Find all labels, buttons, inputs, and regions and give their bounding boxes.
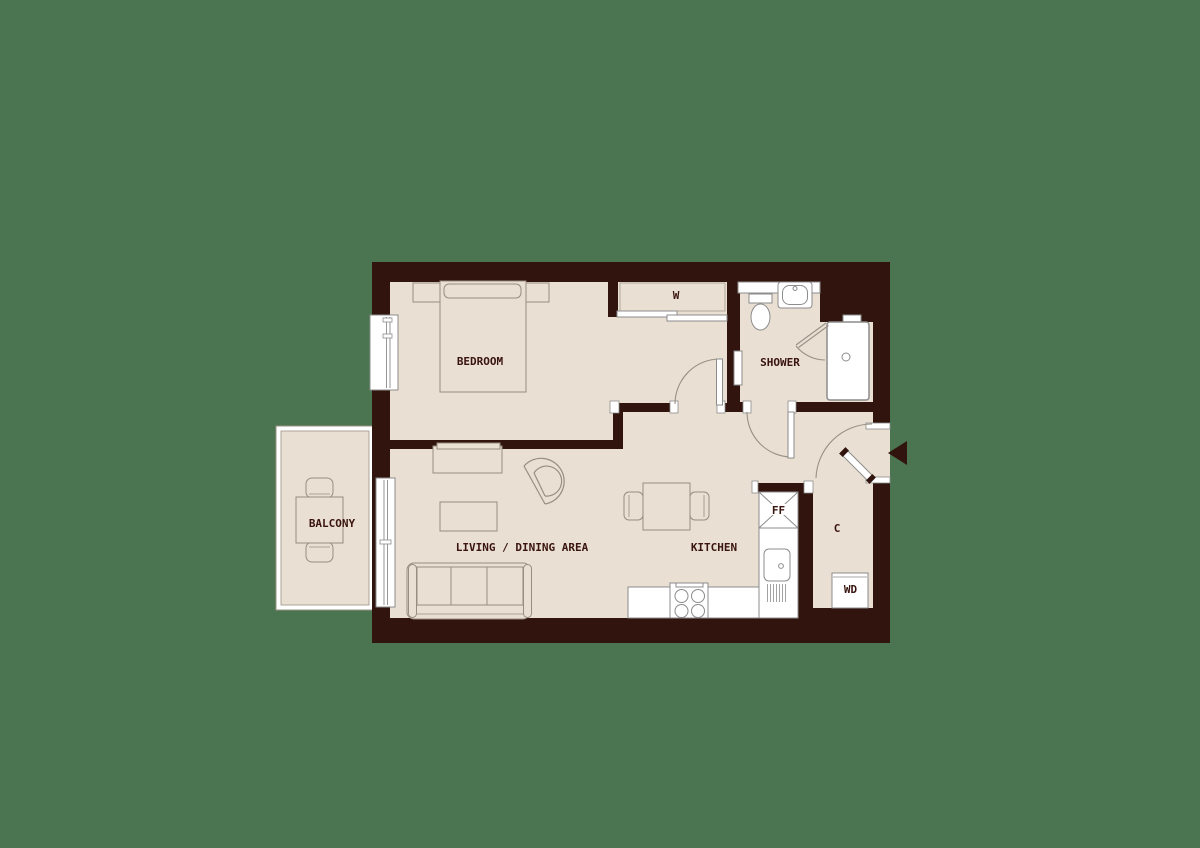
wardrobe-slider-right [667,315,727,321]
wall-right-upper [873,262,890,428]
sink-drainer [768,584,786,602]
wall-living-north [388,440,623,449]
bedroom-window [370,315,398,390]
label-living-dining: LIVING / DINING AREA [456,541,589,554]
wall-bathroom-west [727,282,740,412]
balcony-chair-top [306,478,333,498]
wall-right-lower [873,478,890,643]
basin-faucet [793,287,797,291]
balcony-sliding-door [376,478,395,607]
wall-top [372,262,890,282]
label-fridge-freezer: FF [772,504,785,517]
hob-burner-4 [692,605,705,618]
kitchen-sink [764,549,790,581]
label-washer-dryer: WD [844,583,858,596]
bedside-table-left [413,283,440,302]
label-balcony: BALCONY [309,517,356,530]
sofa-cushion-3 [487,567,523,605]
sofa-cushion-1 [417,567,451,605]
sofa-cushion-2 [451,567,487,605]
coffee-table [440,502,497,531]
dining-table [643,483,690,530]
dining-chair-left [624,492,643,520]
label-cupboard: C [834,522,841,535]
label-kitchen: KITCHEN [691,541,737,554]
sofa-arm-left [409,565,417,618]
sink-faucet [779,564,784,569]
bed-pillow [444,284,521,298]
label-wardrobe: W [673,289,680,302]
dining-chair-right [690,492,709,520]
hob-burner-3 [675,605,688,618]
wall-bottom [372,618,890,643]
hob-control-strip [676,583,703,587]
tv [437,443,500,449]
bedside-table-right [526,283,549,302]
wall-bathroom-south-b [792,402,873,412]
shower-head-box [843,315,861,322]
floor-plan-canvas: BEDROOM W SHOWER LIVING / DINING AREA KI… [0,0,1200,848]
toilet-bowl [751,304,770,330]
hob-burner-2 [692,590,705,603]
sofa-arm-right [524,565,532,618]
label-bedroom: BEDROOM [457,355,504,368]
shower-drain [842,353,850,361]
balcony-chair-bottom [306,542,333,562]
wall-cupboard-west [798,483,813,618]
toilet-cistern [749,294,772,303]
label-shower: SHOWER [760,356,800,369]
tv-unit [433,446,502,473]
hob-burner-1 [675,590,688,603]
bathroom-radiator [734,351,742,385]
